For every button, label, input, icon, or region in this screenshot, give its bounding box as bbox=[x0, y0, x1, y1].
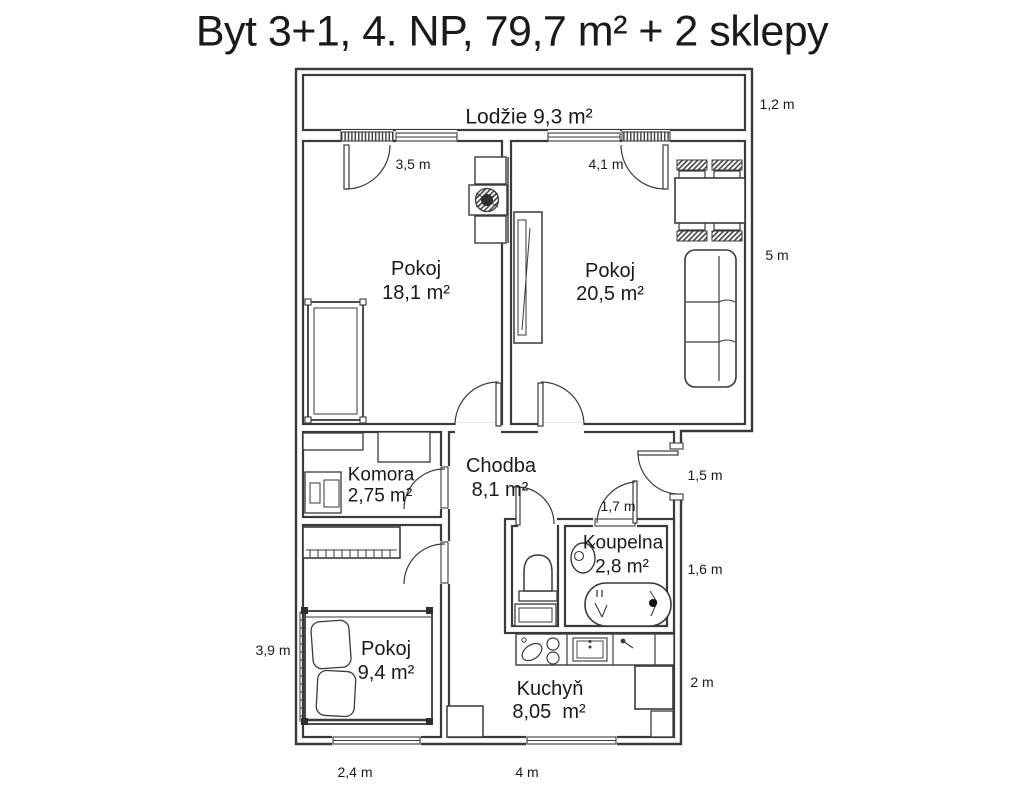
dim-pokoj-18-width: 3,5 m bbox=[395, 157, 430, 171]
dim-entry-wall: 1,5 m bbox=[687, 468, 722, 482]
dim-pokoj-20-height: 5 m bbox=[765, 248, 788, 262]
office-chair bbox=[476, 189, 499, 212]
bed-single bbox=[305, 299, 366, 423]
balcony-door-threshold-left bbox=[341, 132, 393, 141]
door-jamb-koupelna bbox=[595, 519, 635, 526]
dim-koupelna-height: 1,6 m bbox=[687, 562, 722, 576]
sofa bbox=[685, 250, 736, 387]
room-label-pokoj-9: Pokoj bbox=[361, 639, 411, 659]
room-area-komora: 2,75 m² bbox=[348, 487, 412, 506]
bathtub bbox=[585, 583, 671, 626]
chair-backrest bbox=[677, 231, 707, 241]
dim-pokoj-20-width: 4,1 m bbox=[588, 157, 623, 171]
room-label-chodba: Chodba bbox=[466, 456, 536, 476]
dining-table bbox=[675, 178, 745, 223]
room-label-koupelna: Koupelna bbox=[583, 534, 663, 553]
wardrobe-pokoj-20 bbox=[514, 212, 542, 343]
room-area-koupelna: 2,8 m² bbox=[595, 558, 649, 577]
pillow bbox=[310, 620, 351, 670]
door-jamb-komora bbox=[441, 467, 448, 508]
dim-pokoj-9-width: 2,4 m bbox=[337, 765, 372, 779]
pillow bbox=[316, 670, 356, 717]
chair-backrest bbox=[712, 231, 742, 241]
wc-cabinet bbox=[515, 604, 556, 626]
dim-lodzie-depth: 1,2 m bbox=[759, 97, 794, 111]
chair-backrest bbox=[677, 160, 707, 170]
room-label-pokoj-20: Pokoj bbox=[585, 261, 635, 281]
dim-kuchyn-right-height: 2 m bbox=[690, 675, 713, 689]
dim-pokoj-9-height: 3,9 m bbox=[255, 643, 290, 657]
room-area-pokoj-18: 18,1 m² bbox=[382, 283, 450, 303]
entry-jamb-bottom bbox=[670, 494, 683, 500]
dim-koupelna-door-wall: 1,7 m bbox=[600, 499, 635, 513]
room-label-kuchyn: Kuchyň bbox=[517, 679, 584, 699]
entry-jamb-top bbox=[670, 443, 683, 449]
floor-plan-page: Byt 3+1, 4. NP, 79,7 m² + 2 sklepy Lodži… bbox=[0, 0, 1024, 796]
room-area-pokoj-9: 9,4 m² bbox=[358, 663, 415, 683]
room-area-kuchyn: 8,05 m² bbox=[512, 702, 585, 722]
page-title: Byt 3+1, 4. NP, 79,7 m² + 2 sklepy bbox=[196, 11, 828, 54]
wardrobe-pokoj-9 bbox=[303, 527, 400, 558]
room-area-chodba: 8,1 m² bbox=[472, 480, 529, 500]
room-label-pokoj-18: Pokoj bbox=[391, 259, 441, 279]
kitchen-table bbox=[447, 706, 483, 737]
chair-backrest bbox=[712, 160, 742, 170]
balcony-door-threshold-right bbox=[622, 132, 670, 141]
door-jamb-pokoj-9 bbox=[441, 542, 448, 583]
room-label-lodzie: Lodžie 9,3 m² bbox=[465, 107, 592, 128]
room-label-komora: Komora bbox=[348, 466, 415, 485]
kitchen-sink bbox=[573, 638, 607, 661]
dim-kuchyn-width: 4 m bbox=[515, 765, 538, 779]
room-area-pokoj-20: 20,5 m² bbox=[576, 284, 644, 304]
washing-machine bbox=[305, 472, 341, 513]
